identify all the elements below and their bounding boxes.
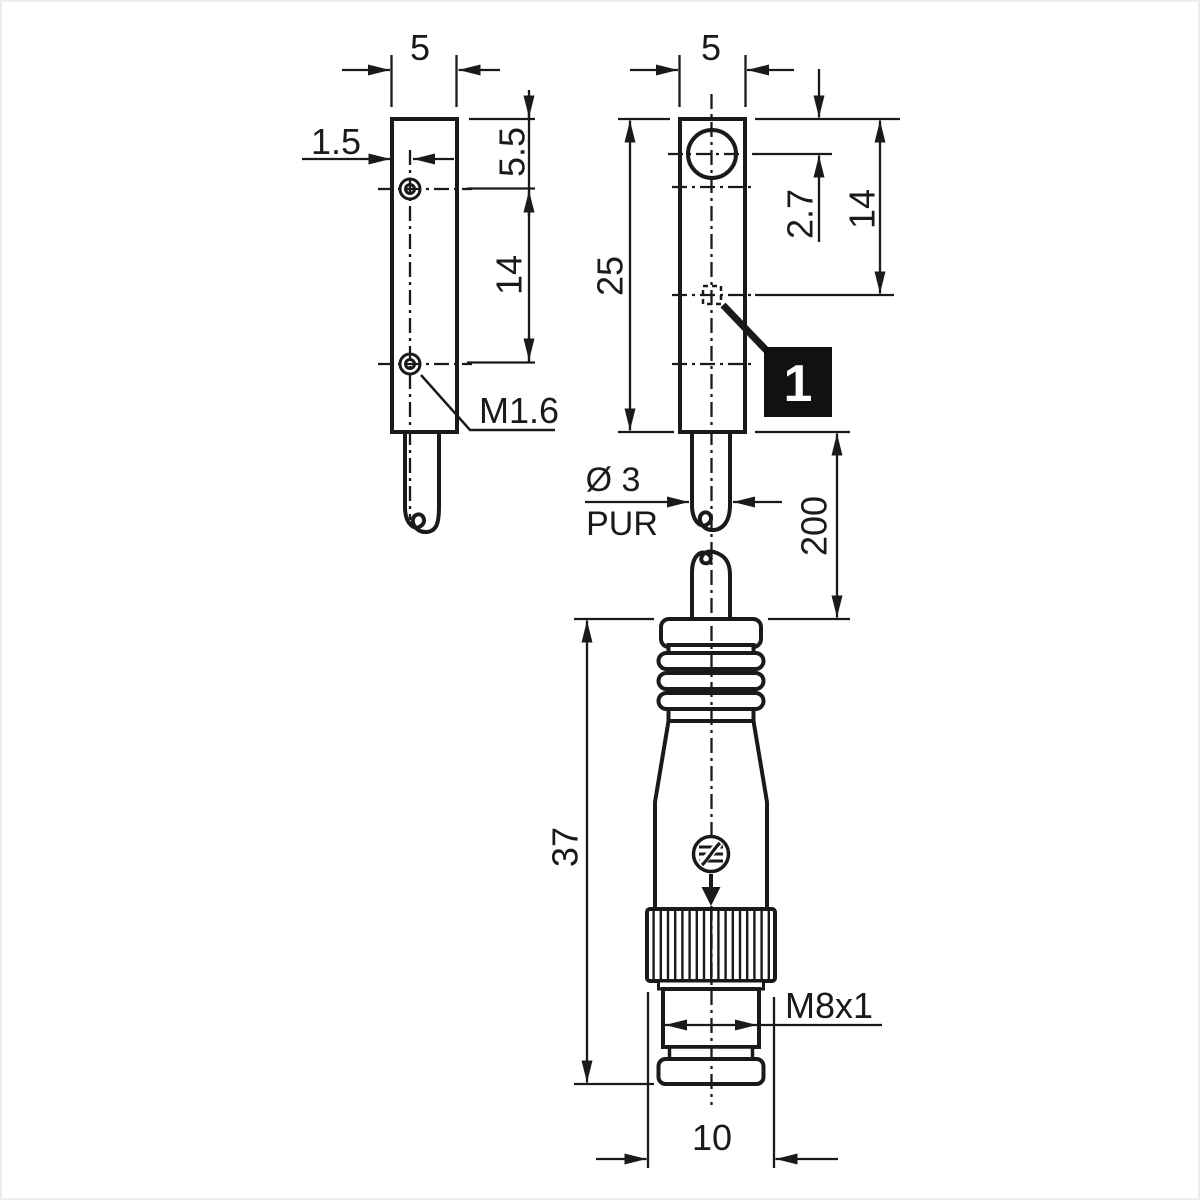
- dim-side-hole-offset: 1.5: [311, 121, 361, 162]
- label-connector-thread: M8x1: [785, 985, 873, 1026]
- technical-drawing-page: 1 5 1.5 5.5 14 M1.6: [0, 0, 1200, 1200]
- dim-front-led-offset: 14: [842, 189, 883, 229]
- dim-connector-width: 10: [692, 1117, 732, 1158]
- shield-symbol-icon: [694, 837, 729, 872]
- dim-front-face-offset: 2.7: [780, 189, 821, 239]
- label-screw-thread: M1.6: [479, 390, 559, 431]
- dim-cable-length: 200: [794, 496, 835, 556]
- led-callout-label: 1: [784, 355, 813, 413]
- dim-front-width: 5: [701, 27, 721, 68]
- side-view: [392, 119, 457, 532]
- label-cable-material: PUR: [586, 505, 658, 543]
- dim-side-hole-spacing: 14: [489, 255, 530, 295]
- dim-front-length: 25: [590, 256, 631, 296]
- sensor-dimension-drawing: 1 5 1.5 5.5 14 M1.6: [2, 2, 1200, 1202]
- dim-side-hole-top: 5.5: [492, 127, 533, 177]
- side-view-body: [392, 119, 457, 432]
- dim-connector-length: 37: [545, 827, 586, 867]
- label-cable-diameter: Ø 3: [586, 461, 641, 499]
- dim-side-width: 5: [410, 27, 430, 68]
